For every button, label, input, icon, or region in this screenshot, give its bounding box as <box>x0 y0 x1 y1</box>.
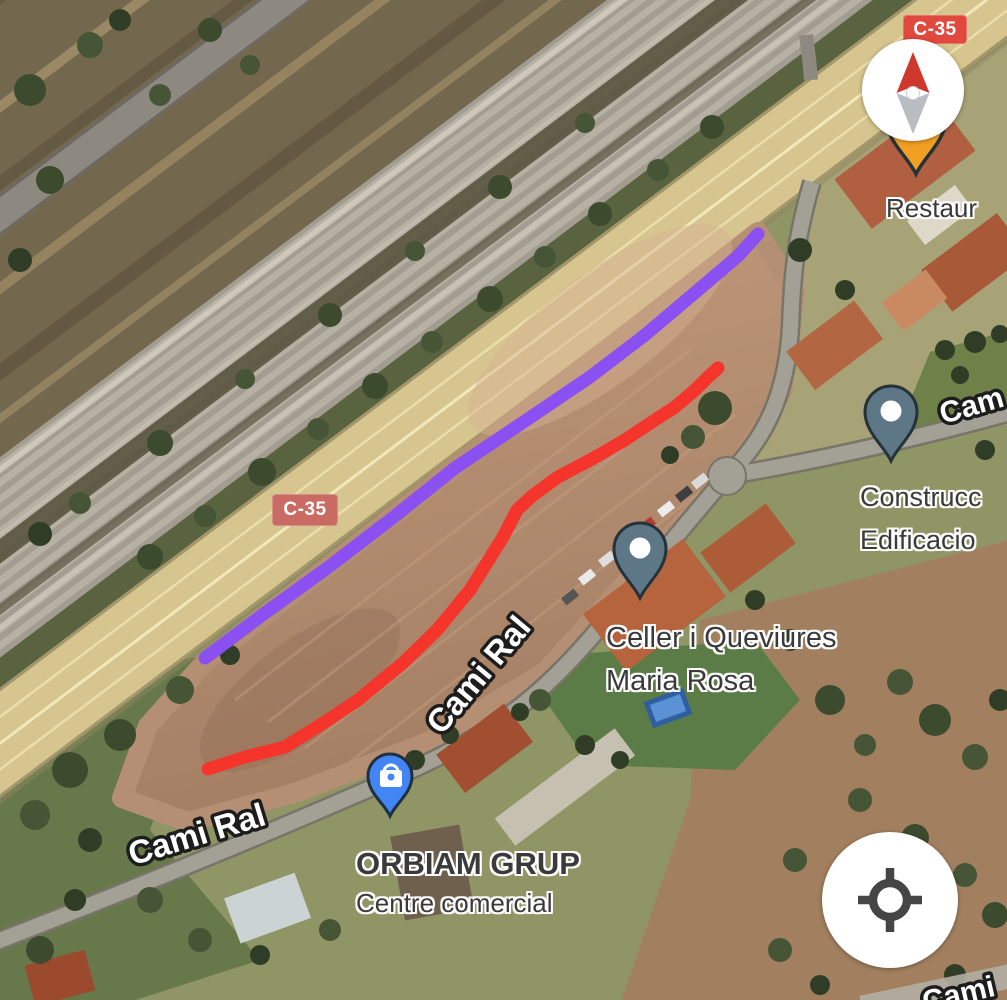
orbiam-label-line2: Centre comercial <box>356 885 580 921</box>
roundabout <box>708 457 746 495</box>
orbiam-label-line1: ORBIAM GRUP <box>356 843 580 885</box>
orbiam-label[interactable]: ORBIAM GRUP Centre comercial <box>356 843 580 921</box>
celler-label[interactable]: Celler i Queviures Maria Rosa <box>606 617 836 703</box>
c35-shield-mid: C-35 <box>272 494 338 526</box>
my-location-icon <box>822 832 958 968</box>
construccions-label[interactable]: Construcc Edificacio <box>860 476 982 562</box>
compass-needle-icon <box>862 39 964 141</box>
celler-label-line2: Maria Rosa <box>606 660 836 703</box>
celler-label-line1: Celler i Queviures <box>606 617 836 660</box>
construccions-label-line2: Edificacio <box>860 519 982 562</box>
locate-button[interactable] <box>822 832 958 968</box>
restaurant-label[interactable]: Restaur <box>886 193 977 224</box>
map-viewport[interactable]: Cami Ral Cami Ral Cam Cami Restaur Const… <box>0 0 1007 1000</box>
compass-button[interactable] <box>862 39 964 141</box>
construccions-label-line1: Construcc <box>860 476 982 519</box>
